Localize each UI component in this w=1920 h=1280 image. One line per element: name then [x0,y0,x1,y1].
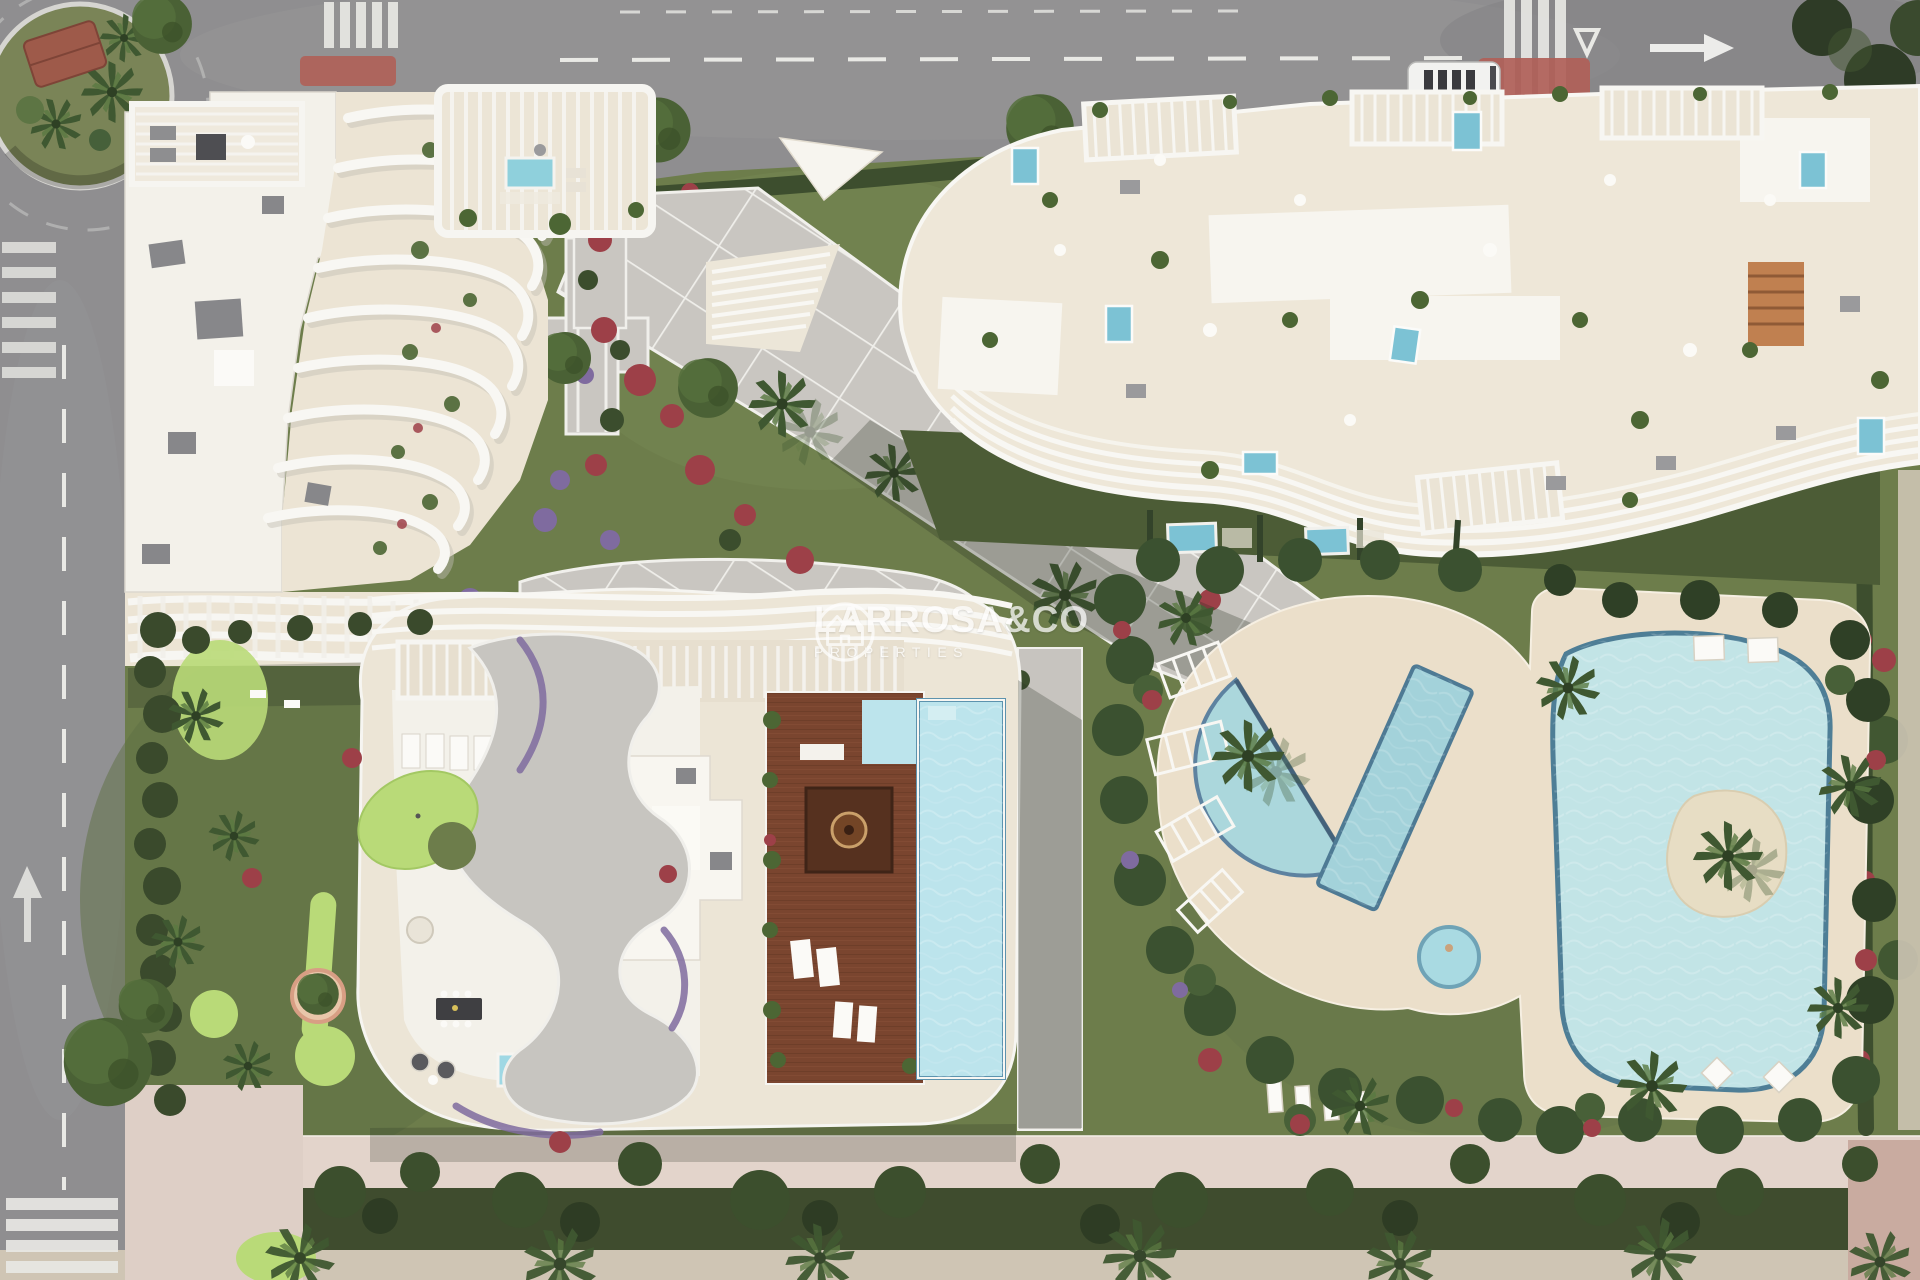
building-a-roof-pergola [132,104,302,184]
lagoon-pool [1553,633,1830,1090]
aerial-render-scene: LARROSA&CO PROPERTIES [0,0,1920,1280]
aerial-render-art [0,0,1920,1280]
garden-plunge-pool [506,158,554,188]
right-sidewalk-strip [1898,470,1920,1130]
building-c-shadow [370,1124,1016,1162]
building-c-parasol [407,917,433,943]
jacuzzi [1409,917,1489,997]
plaza-tree [678,358,738,418]
building-c-deck-pavilion [806,788,892,872]
refuge-island-red [300,56,396,86]
building-c-east-shadow [1018,680,1082,1128]
deck-bbq-counter [800,744,844,760]
round-planter [292,970,344,1022]
building-b-roof-rug [1748,262,1804,346]
